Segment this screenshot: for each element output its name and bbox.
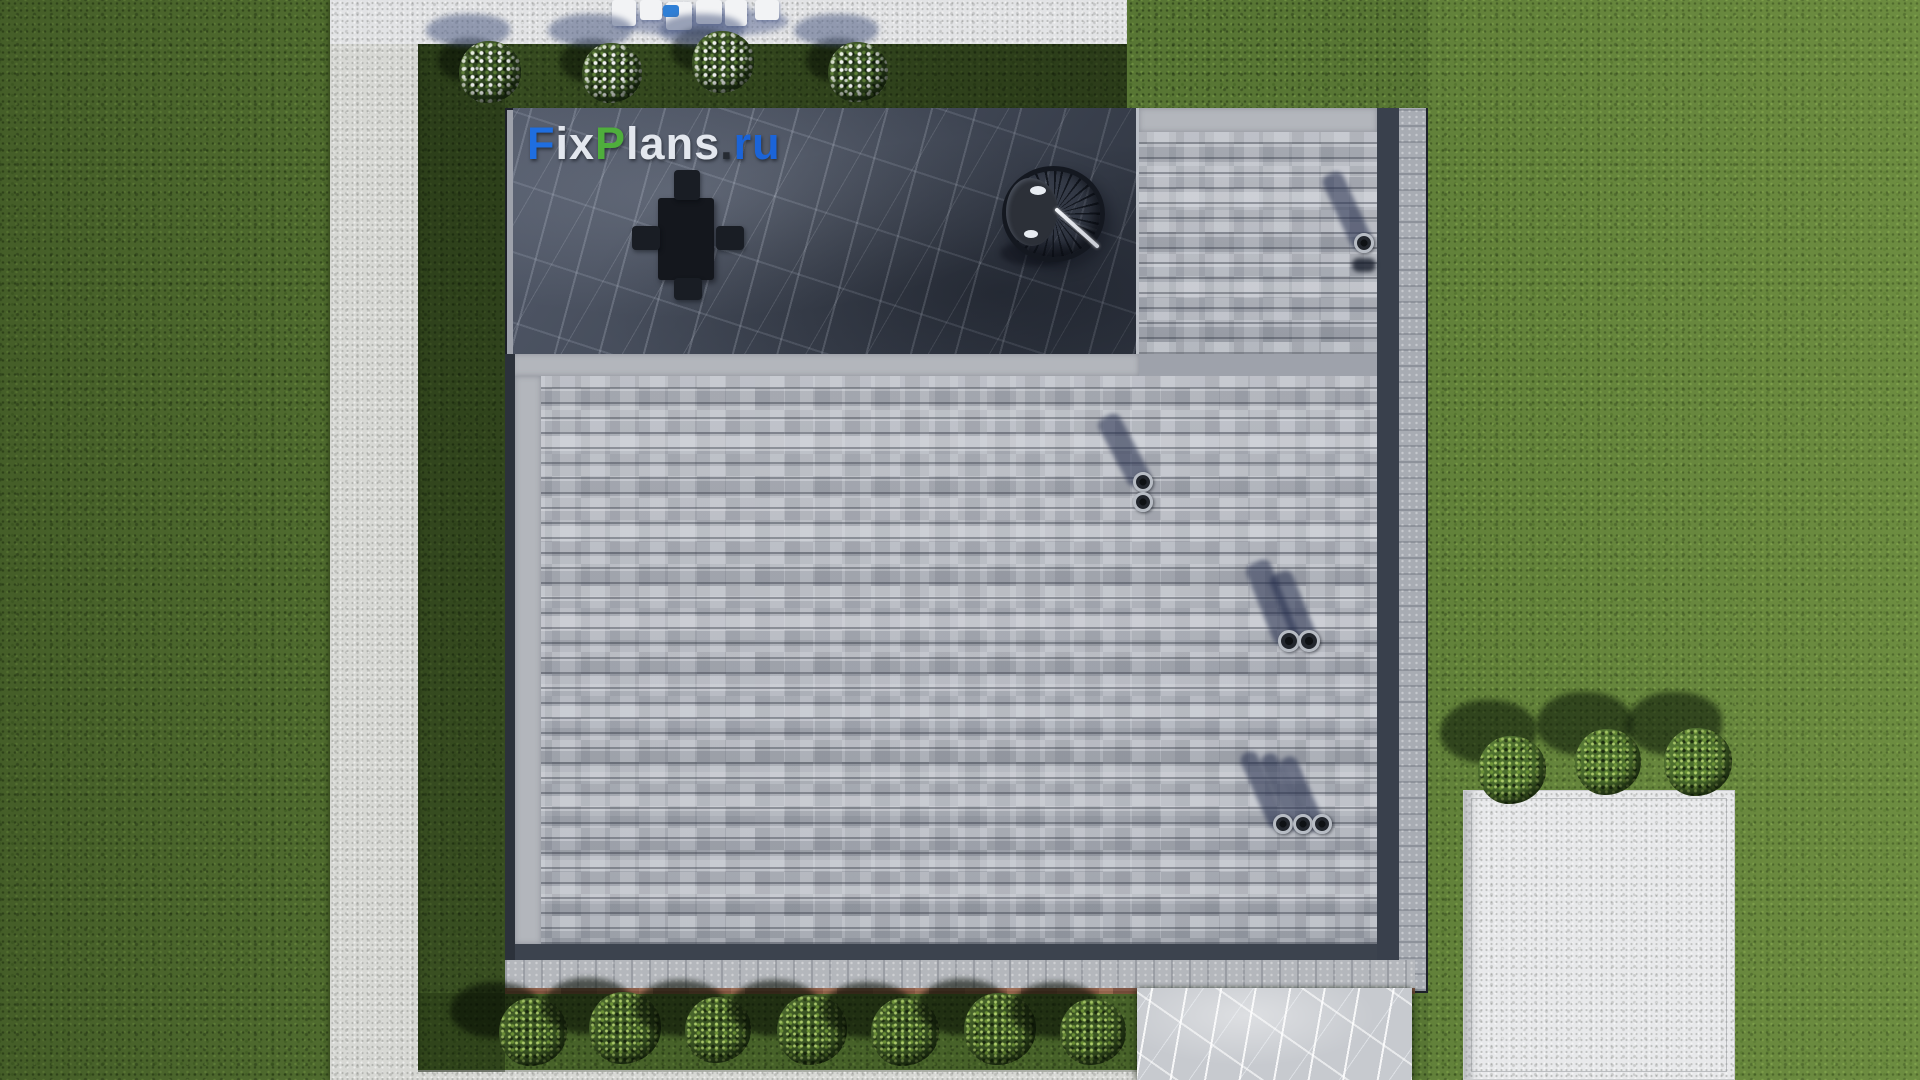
roof-pavers-main bbox=[515, 376, 1377, 944]
vent-pipe bbox=[1312, 814, 1332, 834]
sun-lounger bbox=[755, 0, 779, 20]
roof-gutter-left bbox=[505, 354, 515, 960]
roof-pavers-topright bbox=[1139, 132, 1377, 354]
dining-table bbox=[658, 198, 714, 280]
vent-pipe bbox=[1133, 492, 1153, 512]
watermark-letter: F bbox=[527, 118, 556, 169]
watermark-letter: lans bbox=[626, 118, 720, 169]
sun-lounger bbox=[640, 0, 662, 20]
roof-paver-margin-left bbox=[515, 376, 541, 944]
site-plan-render: FixPlans.ru bbox=[0, 0, 1920, 1080]
roof-paver-margin-terrace bbox=[513, 354, 1139, 376]
vent-pipe bbox=[1298, 630, 1320, 652]
roof-gutter-bottom bbox=[513, 944, 1377, 960]
garden-path-left bbox=[330, 0, 418, 1080]
vent-pipe bbox=[1293, 814, 1313, 834]
dining-chair bbox=[674, 170, 700, 200]
pad-inner-border bbox=[1471, 798, 1727, 1072]
white-concrete-pad bbox=[1463, 790, 1735, 1080]
shaded-grass-left-of-roof bbox=[418, 44, 505, 1072]
vent-base bbox=[1352, 258, 1376, 272]
bush-shadow bbox=[794, 14, 878, 46]
vent-pipe bbox=[1133, 472, 1153, 492]
vent-pipe bbox=[1278, 630, 1300, 652]
marble-walkway bbox=[1137, 988, 1412, 1080]
bush-shadow bbox=[548, 14, 632, 46]
watermark-letter: ru bbox=[734, 118, 781, 169]
vent-pipe bbox=[1354, 233, 1374, 253]
dining-chair bbox=[632, 226, 660, 250]
dining-chair bbox=[716, 226, 744, 250]
vent-pipe bbox=[1273, 814, 1293, 834]
watermark-letter: . bbox=[720, 118, 734, 169]
watermark-letter: ix bbox=[556, 118, 596, 169]
blue-cushion bbox=[663, 5, 679, 17]
roof-parapet-right bbox=[1399, 108, 1426, 991]
roof-gutter-right bbox=[1377, 108, 1399, 960]
dining-chair bbox=[674, 278, 702, 300]
watermark-letter: P bbox=[595, 118, 626, 169]
chair-glint bbox=[1024, 230, 1038, 238]
terrace-paver-seam bbox=[1136, 108, 1139, 354]
watermark-text: FixPlans.ru bbox=[527, 118, 781, 170]
chair-glint bbox=[1030, 186, 1046, 195]
roof-paver-margin-top bbox=[1139, 108, 1377, 132]
